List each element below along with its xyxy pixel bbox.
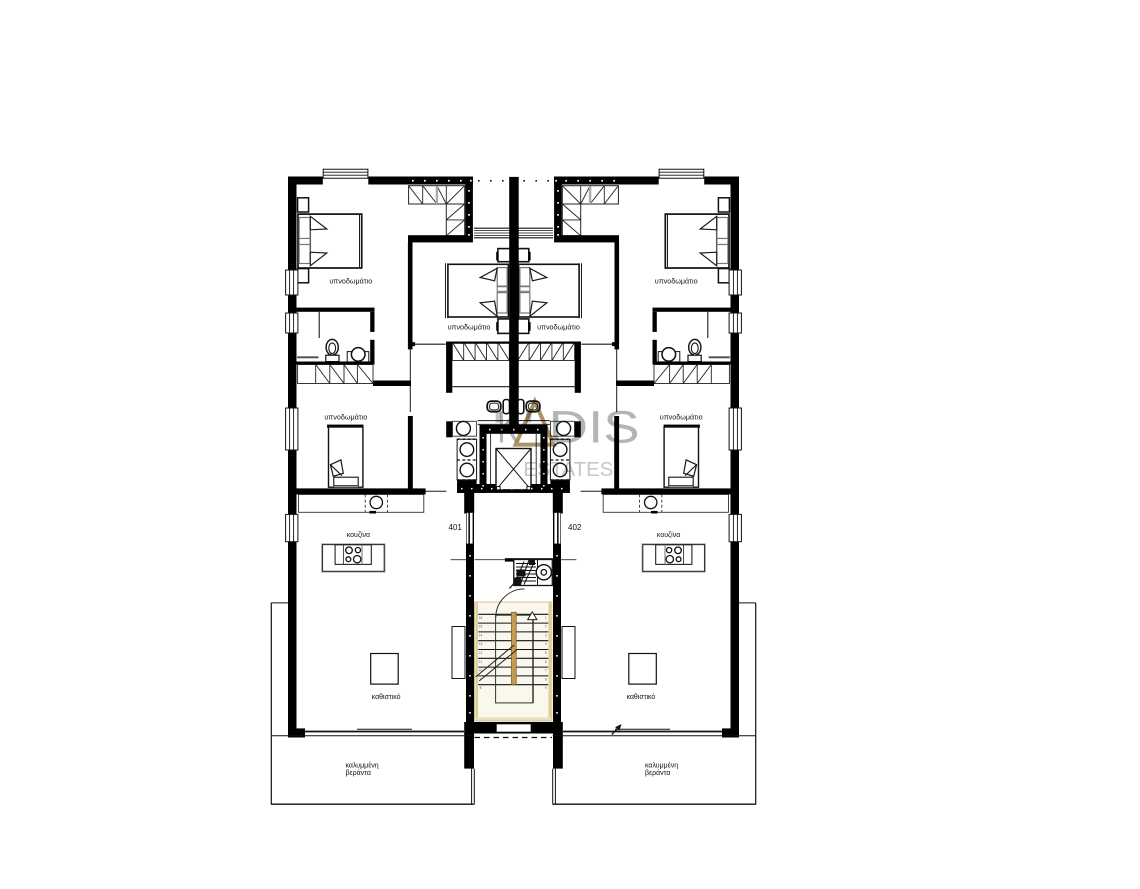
svg-text:ESTATES: ESTATES <box>523 459 613 481</box>
svg-text:3: 3 <box>545 633 547 637</box>
svg-text:υπνοδωμάτιο: υπνοδωμάτιο <box>329 277 372 286</box>
svg-text:υπνοδωμάτιο: υπνοδωμάτιο <box>448 323 491 332</box>
svg-text:12: 12 <box>479 651 483 655</box>
svg-text:βεράντα: βεράντα <box>645 769 670 777</box>
svg-text:7: 7 <box>545 669 547 673</box>
svg-text:402: 402 <box>568 523 582 532</box>
svg-text:6: 6 <box>545 660 547 664</box>
svg-text:10: 10 <box>479 669 483 673</box>
svg-text:9: 9 <box>480 677 482 681</box>
svg-text:κουζίνα: κουζίνα <box>347 531 370 539</box>
svg-text:DIS: DIS <box>549 402 640 453</box>
svg-text:καθιστικό: καθιστικό <box>626 693 655 701</box>
svg-text:14: 14 <box>479 633 483 637</box>
svg-text:καλυμμένη: καλυμμένη <box>645 762 678 770</box>
svg-text:8: 8 <box>545 677 547 681</box>
svg-text:13: 13 <box>479 642 483 646</box>
svg-text:υπνοδωμάτιο: υπνοδωμάτιο <box>324 413 367 422</box>
svg-text:4: 4 <box>545 642 547 646</box>
svg-text:8: 8 <box>480 686 482 690</box>
svg-text:11: 11 <box>479 660 483 664</box>
svg-text:16: 16 <box>479 616 483 620</box>
svg-text:υπνοδωμάτιο: υπνοδωμάτιο <box>537 323 580 332</box>
svg-text:401: 401 <box>449 523 463 532</box>
svg-text:υπνοδωμάτιο: υπνοδωμάτιο <box>655 277 698 286</box>
svg-text:15: 15 <box>479 625 483 629</box>
svg-text:καθιστικό: καθιστικό <box>372 693 401 701</box>
svg-text:5: 5 <box>545 651 547 655</box>
svg-text:βεράντα: βεράντα <box>346 769 371 777</box>
svg-text:κουζίνα: κουζίνα <box>657 531 680 539</box>
svg-text:υπνοδωμάτιο: υπνοδωμάτιο <box>660 413 703 422</box>
svg-text:καλυμμένη: καλυμμένη <box>346 762 379 770</box>
svg-text:1: 1 <box>545 616 547 620</box>
svg-text:2: 2 <box>545 625 547 629</box>
svg-text:9: 9 <box>545 686 547 690</box>
